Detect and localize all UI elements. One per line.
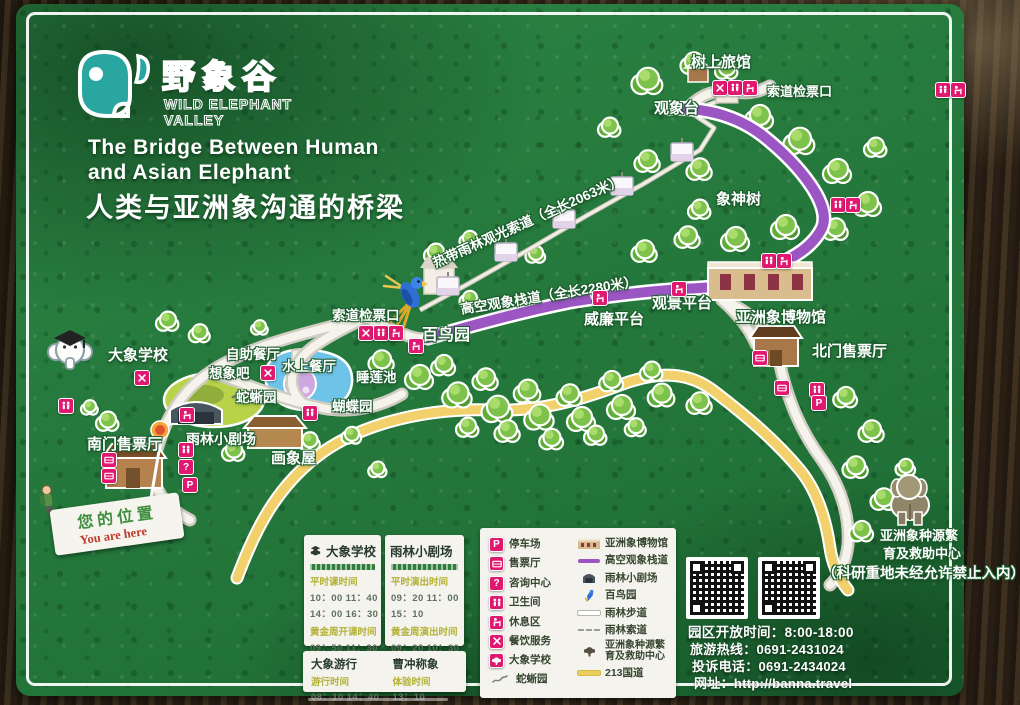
schedule-section-head: 平时演出时间: [391, 574, 458, 588]
legend-label: 雨林步道: [605, 608, 647, 619]
map-label-north-ticket: 北门售票厅: [812, 340, 887, 361]
ticket-map-icon: [774, 380, 790, 396]
brand-logo-en1: WILD ELEPHANT: [164, 96, 292, 112]
legend-label: 雨林索道: [605, 625, 647, 636]
legend-item-breed: 亚洲象种源繁育及救助中心: [578, 641, 669, 662]
map-label-lily-pond: 睡莲池: [356, 366, 397, 386]
you-are-here-box: 您的位置 You are here: [49, 492, 184, 556]
snake-icon: [489, 674, 511, 684]
legend-label: 休息区: [509, 617, 541, 628]
legend-item-ropeway: 雨林索道: [578, 624, 669, 637]
school-icon: [489, 653, 504, 668]
legend-label: 亚洲象博物馆: [605, 538, 668, 549]
schedule-time: 14：00 16：30: [310, 606, 375, 620]
schedule-title: 大象游行: [311, 656, 383, 672]
legend-item-snake: 蛇蜥园: [489, 673, 571, 686]
rest-icon: [489, 615, 504, 630]
legend-item-school: 大象学校: [489, 653, 571, 668]
rest-map-icon: [845, 197, 861, 213]
legend-item-ticket: 售票厅: [489, 556, 571, 571]
rest-map-icon: [408, 338, 424, 354]
schedule-section-head: 体验时间: [393, 674, 465, 688]
parking-map-icon: P: [811, 395, 827, 411]
restroom-map-icon: [58, 398, 74, 414]
legend-label: 雨林小剧场: [605, 573, 658, 584]
restroom-map-icon: [830, 197, 846, 213]
qr-code-2: [758, 557, 820, 619]
info-map-icon: ?: [178, 459, 194, 475]
rest-map-icon: [776, 253, 792, 269]
legend-item-parking: P停车场: [489, 537, 571, 552]
dining-map-icon: [712, 80, 728, 96]
map-label-william-platform: 威廉平台: [584, 308, 644, 329]
brand-logo-cn: 野象谷: [162, 50, 282, 98]
map-board: 野象谷 WILD ELEPHANT VALLEY The Bridge Betw…: [16, 4, 964, 696]
theater-icon: [578, 573, 600, 583]
schedule-title: 曹冲称象: [393, 656, 465, 672]
legend-column-left: P停车场售票厅?咨询中心卫生间休息区餐饮服务大象学校蛇蜥园: [489, 537, 571, 693]
legend-label: 213国道: [605, 668, 644, 679]
restroom-map-icon: [935, 82, 951, 98]
rest-map-icon: [388, 325, 404, 341]
legend-label: 百鸟园: [605, 590, 637, 601]
schedule-section-head: 平时课时间: [310, 574, 375, 588]
legend-label: 大象学校: [509, 655, 551, 666]
restroom-map-icon: [302, 405, 318, 421]
legend-item-trail: 雨林步道: [578, 607, 669, 620]
map-label-tree-hotel: 树上旅馆: [691, 51, 751, 72]
legend-item-theater: 雨林小剧场: [578, 572, 669, 585]
legend-item-road: 213国道: [578, 667, 669, 680]
website-text: 网址：http://banna.travel: [694, 673, 852, 692]
road-icon: [578, 670, 600, 676]
open-hours-text: 园区开放时间：8:00-18:00: [688, 621, 854, 641]
dining-map-icon: [260, 365, 276, 381]
schedule-section-head: 游行时间: [311, 674, 383, 688]
schedule-title: 雨林小剧场: [390, 541, 453, 560]
legend-label: 餐饮服务: [509, 636, 551, 647]
map-label-butterfly-garden: 蝴蝶园: [332, 395, 373, 415]
restroom-map-icon: [373, 325, 389, 341]
legend-item-rest: 休息区: [489, 615, 571, 630]
legend-label: 蛇蜥园: [516, 674, 548, 685]
map-label-observation-tower: 观象台: [654, 97, 699, 118]
legend-item-dining: 餐饮服务: [489, 634, 571, 649]
brand-logo-icon: [72, 46, 172, 122]
legend-item-skywalk: 高空观象栈道: [578, 554, 669, 567]
map-label-museum: 亚洲象博物馆: [736, 306, 826, 327]
map-label-south-ticket: 南门售票厅: [87, 433, 162, 454]
map-label-cableway: 热带雨林观光索道（全长2063米）: [429, 169, 625, 271]
rest-map-icon: [742, 80, 758, 96]
schedule-card-elephant-school: 大象学校平时课时间10：00 11：4014：00 16：30黄金周开课时间09…: [304, 535, 381, 646]
map-label-painting-house: 画象屋: [271, 447, 316, 468]
schedule-banner: [391, 564, 458, 570]
parking-icon: P: [489, 537, 504, 552]
map-label-imagine-bar: 想象吧: [209, 362, 250, 382]
dining-icon: [489, 634, 504, 649]
legend-label: 亚洲象种源繁育及救助中心: [605, 641, 669, 662]
map-label-cable-ticket-top: 索道检票口: [767, 81, 832, 100]
map-label-bird-garden: 百鸟园: [422, 321, 470, 345]
schedule-banner: [310, 564, 375, 570]
restroom-map-icon: [178, 442, 194, 458]
map-label-water-restaurant: 水上餐厅: [282, 355, 336, 375]
museum-icon: [578, 539, 600, 549]
legend-column-right: 亚洲象博物馆高空观象栈道雨林小剧场百鸟园雨林步道雨林索道亚洲象种源繁育及救助中心…: [578, 537, 669, 693]
trail-icon: [578, 610, 600, 616]
map-label-elephant-god-tree: 象神树: [716, 188, 761, 209]
slogan-en-line1: The Bridge Between Human: [88, 136, 379, 160]
map-label-theater: 雨林小剧场: [186, 429, 256, 449]
ticket-map-icon: [752, 350, 768, 366]
restroom-map-icon: [727, 80, 743, 96]
breed-icon: [578, 646, 600, 657]
ticket-map-icon: [101, 468, 117, 484]
legend-item-info: ?咨询中心: [489, 576, 571, 591]
parrot-icon: [578, 589, 600, 602]
map-label-snake-lizard: 蛇蜥园: [236, 386, 277, 406]
schedule-card-theater: 雨林小剧场平时演出时间09：20 11：0015：10黄金周演出时间09：20 …: [385, 535, 464, 646]
qr-code-1: [686, 557, 748, 619]
extra-schedule-left: 大象游行游行时间08：10 14：40: [303, 651, 385, 692]
legend-panel: P停车场售票厅?咨询中心卫生间休息区餐饮服务大象学校蛇蜥园 亚洲象博物馆高空观象…: [480, 528, 676, 698]
map-label-elephant-school: 大象学校: [108, 344, 168, 365]
ticket-map-icon: [101, 452, 117, 468]
legend-item-restroom: 卫生间: [489, 595, 571, 610]
dining-map-icon: [134, 370, 150, 386]
ticket-icon: [489, 556, 504, 571]
schedule-time: 10：00 11：40: [310, 590, 375, 604]
brand-logo-en2: VALLEY: [164, 112, 224, 128]
map-label-research-notice: （科研重地未经允许禁止入内）: [822, 562, 1020, 583]
rest-map-icon: [179, 407, 195, 423]
extra-schedule-right: 曹冲称象体验时间13：10: [385, 651, 467, 692]
schedule-title: 大象学校: [326, 541, 376, 560]
restroom-icon: [489, 595, 504, 610]
labels-layer: 野象谷 WILD ELEPHANT VALLEY The Bridge Betw…: [16, 4, 964, 696]
restroom-map-icon: [761, 253, 777, 269]
skywalk-icon: [578, 559, 600, 563]
legend-label: 咨询中心: [509, 578, 551, 589]
map-label-breeding-center-2: 育及救助中心: [883, 543, 961, 562]
schedule-time: 09：20 11：00: [391, 590, 458, 604]
map-label-buffet: 自助餐厅: [226, 343, 280, 363]
legend-item-parrot: 百鸟园: [578, 589, 669, 602]
photo-background: 野象谷 WILD ELEPHANT VALLEY The Bridge Betw…: [0, 0, 1020, 705]
rest-map-icon: [592, 290, 608, 306]
slogan-zh: 人类与亚洲象沟通的桥梁: [86, 186, 405, 225]
legend-label: 停车场: [509, 539, 541, 550]
legend-label: 卫生间: [509, 597, 541, 608]
schedule-section-head: 黄金周开课时间: [310, 624, 375, 638]
info-icon: ?: [489, 576, 504, 591]
schedule-card-extra: 大象游行游行时间08：10 14：40曹冲称象体验时间13：10: [303, 651, 466, 692]
parking-map-icon: P: [182, 477, 198, 493]
legend-label: 售票厅: [509, 558, 541, 569]
schedule-time: 15：10: [391, 606, 458, 620]
ropeway-icon: [578, 629, 600, 631]
rest-map-icon: [671, 281, 687, 297]
schedule-section-head: 黄金周演出时间: [391, 624, 458, 638]
map-label-cable-ticket-west: 索道检票口: [332, 304, 400, 324]
legend-label: 高空观象栈道: [605, 555, 668, 566]
legend-item-museum: 亚洲象博物馆: [578, 537, 669, 550]
map-label-breeding-center-1: 亚洲象种源繁: [880, 525, 958, 544]
dining-map-icon: [358, 325, 374, 341]
slogan-en-line2: and Asian Elephant: [88, 161, 291, 185]
footnote-smudge: [308, 698, 448, 701]
rest-map-icon: [950, 82, 966, 98]
